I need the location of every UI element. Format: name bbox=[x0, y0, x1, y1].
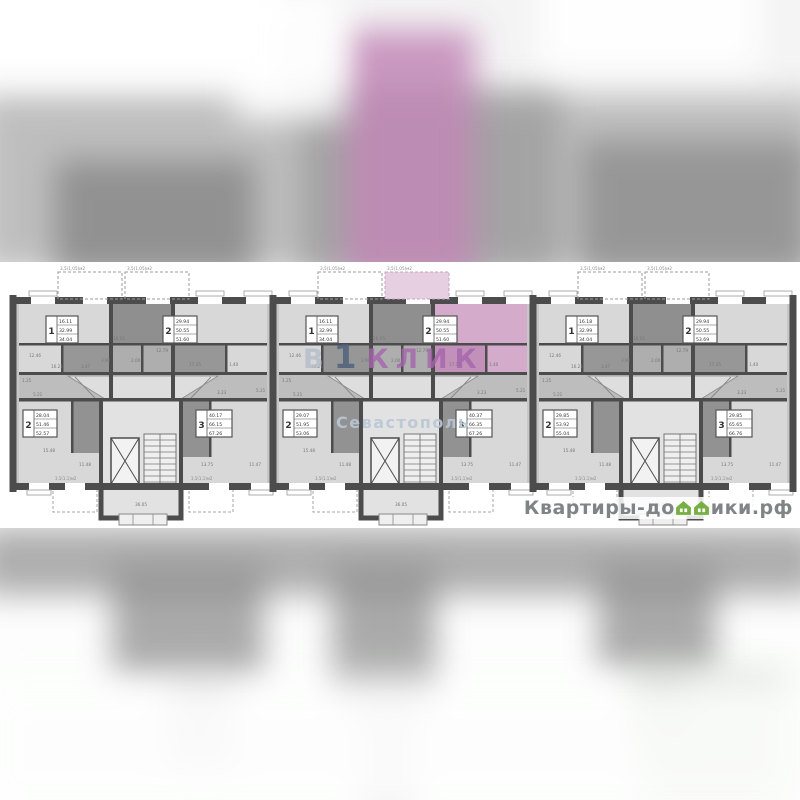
plan-shape bbox=[401, 345, 404, 372]
window bbox=[83, 297, 107, 304]
plan-shape bbox=[331, 401, 334, 453]
staircase bbox=[144, 434, 176, 486]
plan-text: 3,5(1,1)м2 bbox=[711, 476, 733, 481]
plan-text: 1 bbox=[48, 327, 54, 337]
plan-shape bbox=[619, 401, 623, 486]
window bbox=[551, 297, 575, 304]
window bbox=[666, 297, 690, 304]
plan-text: 3,5(1,05)м2 bbox=[580, 266, 605, 271]
window bbox=[198, 297, 222, 304]
plan-text: 5.21 bbox=[33, 392, 43, 397]
plan-text: 3 bbox=[198, 421, 204, 431]
plan-shape bbox=[71, 401, 74, 453]
window-sill bbox=[769, 490, 793, 495]
porch-outline bbox=[53, 488, 97, 512]
plan-shape bbox=[539, 398, 787, 402]
porch-outline bbox=[313, 488, 357, 512]
plan-text: 1 bbox=[308, 327, 314, 337]
plan-text: 17.15 bbox=[189, 362, 201, 367]
window bbox=[343, 297, 367, 304]
plan-text: 16.21 bbox=[311, 364, 323, 369]
plan-text: 16.18 bbox=[579, 319, 592, 325]
balcony-outline bbox=[645, 272, 709, 299]
window bbox=[511, 483, 531, 490]
window bbox=[603, 297, 627, 304]
plan-text: 3,5(1,1)м2 bbox=[55, 476, 77, 481]
plan-shape bbox=[745, 345, 748, 372]
plan-text: 2.00 bbox=[651, 358, 661, 363]
room bbox=[747, 345, 787, 372]
plan-shape bbox=[591, 401, 594, 453]
apartment-label[interactable]: 229.9450.5551.60 bbox=[163, 316, 197, 343]
apartment-label[interactable]: 228.0451.4652.57 bbox=[23, 410, 57, 437]
plan-text: 11.47 bbox=[769, 462, 781, 467]
plan-shape bbox=[19, 398, 267, 402]
plan-text: 5.21 bbox=[256, 388, 266, 393]
logo-text-suffix: ики.рф bbox=[711, 497, 793, 519]
plan-text: 36.05 bbox=[135, 502, 147, 507]
window-sill bbox=[547, 490, 571, 495]
plan-shape bbox=[179, 401, 183, 486]
plan-shape bbox=[19, 372, 267, 375]
plan-text: 29.07 bbox=[296, 413, 309, 419]
plan-text: 32.99 bbox=[319, 328, 332, 334]
plan-text: 5.21 bbox=[776, 388, 786, 393]
window-sill bbox=[244, 291, 272, 296]
plan-text: 15.48 bbox=[563, 448, 575, 453]
apartment-label[interactable]: 340.1766.1567.26 bbox=[196, 410, 232, 437]
window bbox=[251, 483, 271, 490]
plan-text: 29.85 bbox=[729, 413, 742, 419]
plan-text: 2.00 bbox=[131, 358, 141, 363]
window bbox=[506, 297, 530, 304]
room[interactable] bbox=[487, 345, 527, 372]
plan-text: 40.37 bbox=[469, 413, 482, 419]
plan-text: 16.05 bbox=[633, 336, 645, 341]
plan-text: 15.48 bbox=[303, 448, 315, 453]
plan-text: 66.35 bbox=[469, 422, 482, 428]
plan-text: 11.47 bbox=[249, 462, 261, 467]
plan-text: 52.57 bbox=[36, 431, 49, 437]
window-sill bbox=[249, 490, 273, 495]
plan-text: 13.75 bbox=[461, 462, 473, 467]
window bbox=[771, 483, 791, 490]
plan-text: 16.21 bbox=[51, 364, 63, 369]
plan-text: 3,5(1,1)м2 bbox=[575, 476, 597, 481]
window-sill bbox=[504, 291, 532, 296]
entrance-porch bbox=[379, 514, 427, 525]
wall bbox=[10, 295, 17, 492]
plan-text: 13.75 bbox=[721, 462, 733, 467]
plan-text: 3 bbox=[458, 421, 464, 431]
plan-text: 66.76 bbox=[729, 431, 742, 437]
plan-text: 1.40 bbox=[489, 362, 499, 367]
plan-text: 16.05 bbox=[373, 336, 385, 341]
plan-text: 53.92 bbox=[556, 422, 569, 428]
plan-text: 50.55 bbox=[436, 328, 449, 334]
house-icon bbox=[675, 501, 692, 516]
window bbox=[291, 297, 315, 304]
plan-text: 11.47 bbox=[509, 462, 521, 467]
wall bbox=[790, 295, 797, 492]
apartment-label[interactable]: 229.8553.9255.04 bbox=[543, 410, 577, 437]
plan-text: 28.04 bbox=[36, 413, 49, 419]
balcony-outline[interactable] bbox=[385, 272, 449, 299]
plan-text: 34.04 bbox=[319, 337, 332, 343]
apartment-label[interactable]: 116.1832.9934.04 bbox=[566, 316, 598, 343]
house-icon bbox=[693, 501, 710, 516]
plan-text: 2 bbox=[685, 327, 691, 337]
plan-text: 5.21 bbox=[293, 392, 303, 397]
plan-text: 53.06 bbox=[296, 431, 309, 437]
balcony-outline bbox=[578, 272, 642, 299]
plan-text: 2.00 bbox=[391, 358, 401, 363]
plan-text: 12.79 bbox=[416, 348, 428, 353]
plan-shape bbox=[99, 401, 103, 486]
plan-text: 12.79 bbox=[676, 348, 688, 353]
room bbox=[175, 345, 225, 372]
window bbox=[549, 483, 569, 490]
plan-text: 3.90 bbox=[101, 358, 111, 363]
plan-shape bbox=[273, 483, 533, 490]
plan-text: 67.26 bbox=[469, 431, 482, 437]
plan-shape bbox=[485, 345, 488, 372]
plan-text: 3,5(1,1)м2 bbox=[451, 476, 473, 481]
plan-shape bbox=[661, 345, 664, 372]
plan-text: 3.90 bbox=[621, 358, 631, 363]
apartment-label[interactable]: 229.0751.9553.06 bbox=[283, 410, 317, 437]
plan-text: 3.23 bbox=[477, 390, 487, 395]
plan-text: 17.15 bbox=[709, 362, 721, 367]
plan-text: 32.99 bbox=[579, 328, 592, 334]
floor-plan-section-middle: 3,5(1,05)м23,5(1,05)м23,5(1,1)м23,5(1,1)… bbox=[273, 266, 533, 525]
wall bbox=[270, 295, 277, 492]
plan-text: 2 bbox=[25, 421, 31, 431]
porch-outline bbox=[189, 488, 233, 512]
room bbox=[73, 401, 101, 453]
window bbox=[29, 483, 49, 490]
plan-text: 12.46 bbox=[29, 353, 41, 358]
room bbox=[695, 345, 745, 372]
plan-text: 16.11 bbox=[59, 319, 72, 325]
staircase bbox=[404, 434, 436, 486]
plan-text: 11.48 bbox=[79, 462, 91, 467]
plan-text: 2 bbox=[165, 327, 171, 337]
plan-shape bbox=[629, 303, 633, 400]
plan-text: 67.26 bbox=[209, 431, 222, 437]
elevator-shaft bbox=[371, 438, 399, 484]
plan-text: 29.94 bbox=[176, 319, 189, 325]
room bbox=[227, 345, 267, 372]
photo-viewer: 3,5(1,05)м23,5(1,05)м23,5(1,1)м23,5(1,1)… bbox=[0, 0, 800, 800]
window-sill bbox=[287, 490, 311, 495]
apartment-label[interactable]: 229.9450.5553.69 bbox=[683, 316, 717, 343]
plan-text: 29.94 bbox=[436, 319, 449, 325]
plan-shape bbox=[141, 345, 144, 372]
balcony-outline bbox=[318, 272, 382, 299]
plan-text: 36.05 bbox=[395, 502, 407, 507]
window bbox=[289, 483, 309, 490]
porch-outline bbox=[449, 488, 493, 512]
window-sill bbox=[289, 291, 317, 296]
window bbox=[729, 483, 749, 490]
plan-text: 3,5(1,05)м2 bbox=[60, 266, 85, 271]
plan-text: 1.40 bbox=[229, 362, 239, 367]
plan-text: 5.21 bbox=[553, 392, 563, 397]
window bbox=[31, 297, 55, 304]
plan-text: 15.48 bbox=[43, 448, 55, 453]
plan-text: 1.25 bbox=[22, 378, 32, 383]
plan-shape bbox=[13, 483, 273, 490]
window-sill bbox=[716, 291, 744, 296]
room[interactable] bbox=[435, 345, 485, 372]
plan-text: 2 bbox=[285, 421, 291, 431]
plan-text: 13.75 bbox=[201, 462, 213, 467]
plan-shape bbox=[369, 303, 373, 400]
window-sill bbox=[549, 291, 577, 296]
staircase bbox=[664, 434, 696, 486]
plan-text: 1.25 bbox=[542, 378, 552, 383]
plan-text: 12.79 bbox=[156, 348, 168, 353]
elevator-shaft bbox=[631, 438, 659, 484]
plan-text: 3,5(1,1)м2 bbox=[315, 476, 337, 481]
plan-text: 3,5(1,05)м2 bbox=[127, 266, 152, 271]
plan-text: 16.05 bbox=[113, 336, 125, 341]
room bbox=[333, 401, 361, 453]
window bbox=[458, 297, 482, 304]
plan-text: 3.47 bbox=[341, 364, 351, 369]
plan-shape bbox=[539, 372, 787, 375]
window bbox=[246, 297, 270, 304]
plan-text: 29.94 bbox=[696, 319, 709, 325]
plan-text: 3,5(1,05)м2 bbox=[387, 266, 412, 271]
plan-text: 3,5(1,05)м2 bbox=[320, 266, 345, 271]
plan-shape bbox=[109, 303, 113, 400]
site-logo[interactable]: Квартиры-до ики.рф bbox=[522, 497, 795, 519]
window-sill bbox=[196, 291, 224, 296]
plan-text: 1.25 bbox=[282, 378, 292, 383]
plan-text: 5.21 bbox=[516, 388, 526, 393]
plan-text: 51.60 bbox=[436, 337, 449, 343]
window-sill bbox=[456, 291, 484, 296]
window-sill bbox=[509, 490, 533, 495]
plan-text: 40.17 bbox=[209, 413, 222, 419]
window bbox=[766, 297, 790, 304]
plan-text: 3 bbox=[718, 421, 724, 431]
plan-shape bbox=[533, 483, 793, 490]
floor-plan-drawing: 3,5(1,05)м23,5(1,05)м23,5(1,1)м23,5(1,1)… bbox=[0, 0, 800, 800]
plan-shape bbox=[439, 401, 443, 486]
plan-text: 66.15 bbox=[209, 422, 222, 428]
plan-text: 51.60 bbox=[176, 337, 189, 343]
plan-shape bbox=[699, 401, 703, 486]
apartment-label[interactable]: 116.1132.9934.04 bbox=[306, 316, 338, 343]
floor-plan-section-right: 3,5(1,05)м23,5(1,05)м23,5(1,1)м23,5(1,1)… bbox=[533, 266, 793, 525]
plan-text: 11.48 bbox=[339, 462, 351, 467]
plan-text: 50.55 bbox=[696, 328, 709, 334]
plan-text: 12.46 bbox=[289, 353, 301, 358]
window bbox=[146, 297, 170, 304]
plan-text: 3.47 bbox=[81, 364, 91, 369]
plan-shape bbox=[279, 398, 527, 402]
plan-text: 34.04 bbox=[59, 337, 72, 343]
window-sill bbox=[27, 490, 51, 495]
window bbox=[585, 483, 605, 490]
elevator-shaft bbox=[111, 438, 139, 484]
plan-text: 55.04 bbox=[556, 431, 569, 437]
apartment-label[interactable]: 229.9450.5551.60 bbox=[423, 316, 457, 343]
plan-text: 17.15 bbox=[449, 362, 461, 367]
plan-text: 16.21 bbox=[571, 364, 583, 369]
plan-text: 2 bbox=[425, 327, 431, 337]
plan-text: 3,5(1,1)м2 bbox=[191, 476, 213, 481]
plan-text: 2 bbox=[545, 421, 551, 431]
plan-text: 3.90 bbox=[361, 358, 371, 363]
plan-text: 29.85 bbox=[556, 413, 569, 419]
plan-text: 1 bbox=[568, 327, 574, 337]
plan-text: 32.99 bbox=[59, 328, 72, 334]
balcony-outline bbox=[58, 272, 122, 299]
apartment-label[interactable]: 116.1132.9934.04 bbox=[46, 316, 78, 343]
apartment-label[interactable]: 340.3766.3567.26 bbox=[456, 410, 492, 437]
plan-text: 65.65 bbox=[729, 422, 742, 428]
plan-text: 53.69 bbox=[696, 337, 709, 343]
window-sill bbox=[764, 291, 792, 296]
plan-text: 3,5(1,05)м2 bbox=[647, 266, 672, 271]
floor-plan-section-left: 3,5(1,05)м23,5(1,05)м23,5(1,1)м23,5(1,1)… bbox=[13, 266, 273, 525]
window-sill bbox=[29, 291, 57, 296]
plan-text: 16.11 bbox=[319, 319, 332, 325]
balcony-outline bbox=[125, 272, 189, 299]
window bbox=[469, 483, 489, 490]
logo-text-prefix: Квартиры-до bbox=[524, 497, 675, 519]
window bbox=[209, 483, 229, 490]
plan-shape bbox=[279, 372, 527, 375]
plan-text: 12.46 bbox=[549, 353, 561, 358]
wall bbox=[530, 295, 537, 492]
window bbox=[718, 297, 742, 304]
plan-shape bbox=[225, 345, 228, 372]
room bbox=[593, 401, 621, 453]
plan-text: 1.40 bbox=[749, 362, 759, 367]
plan-text: 34.04 bbox=[579, 337, 592, 343]
plan-shape bbox=[359, 401, 363, 486]
plan-text: 11.48 bbox=[599, 462, 611, 467]
entrance-porch bbox=[119, 514, 167, 525]
plan-text: 3.23 bbox=[737, 390, 747, 395]
plan-text: 3.23 bbox=[217, 390, 227, 395]
window bbox=[325, 483, 345, 490]
plan-text: 51.46 bbox=[36, 422, 49, 428]
apartment-label[interactable]: 329.8565.6566.76 bbox=[716, 410, 752, 437]
plan-text: 50.55 bbox=[176, 328, 189, 334]
plan-text: 51.95 bbox=[296, 422, 309, 428]
plan-text: 3.47 bbox=[601, 364, 611, 369]
window bbox=[65, 483, 85, 490]
